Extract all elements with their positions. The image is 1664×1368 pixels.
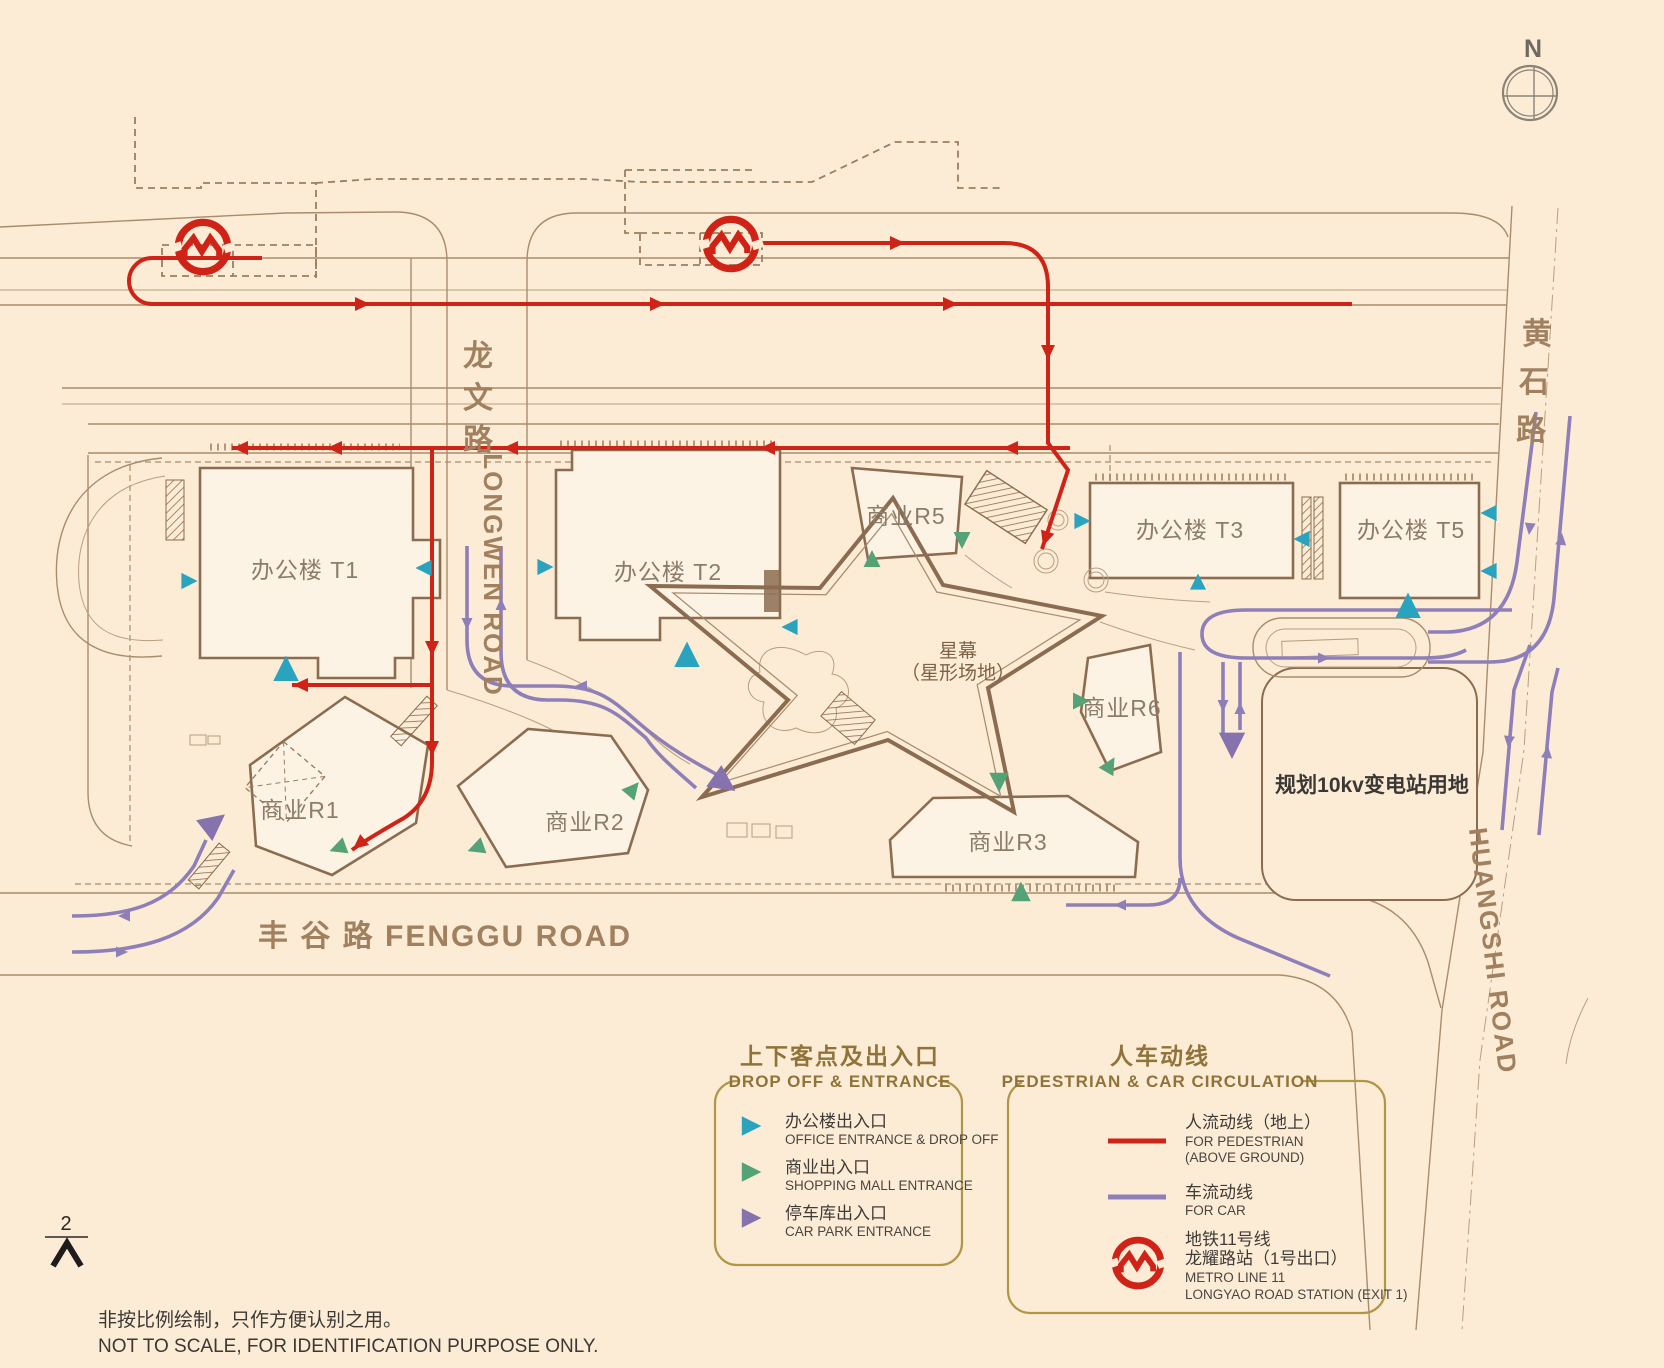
huangshi-cn-1: 黄 bbox=[1522, 318, 1552, 351]
legend-office-en: OFFICE ENTRANCE & DROP OFF bbox=[785, 1132, 999, 1147]
fenggu-label: 丰 谷 路 FENGGU ROAD bbox=[258, 920, 632, 953]
core-structure bbox=[764, 570, 781, 612]
legend-metro-logo-icon bbox=[1107, 1240, 1169, 1286]
legend-metro-en1: METRO LINE 11 bbox=[1185, 1270, 1285, 1285]
compass-label: N bbox=[1524, 35, 1542, 63]
legend-entrance: 上下客点及出入口 DROP OFF & ENTRANCE 办公楼出入口 OFFI… bbox=[715, 1043, 999, 1265]
label-plaza-1: 星幕 bbox=[939, 640, 977, 662]
longwen-en: LONGWEN ROAD bbox=[478, 453, 508, 697]
legend-carpark-en: CAR PARK ENTRANCE bbox=[785, 1224, 931, 1239]
legend-pedestrian-cn: 人流动线（地上） bbox=[1185, 1113, 1321, 1132]
building-r2 bbox=[458, 729, 648, 867]
legend-office-cn: 办公楼出入口 bbox=[785, 1112, 887, 1131]
legend-circulation: 人车动线 PEDESTRIAN & CAR CIRCULATION 人流动线（地… bbox=[1002, 1043, 1408, 1313]
page-marker-number: 2 bbox=[60, 1213, 71, 1235]
north-compass bbox=[1503, 66, 1557, 120]
longwen-cn-1: 龙 bbox=[463, 340, 493, 373]
site-plan-page: N 龙 文 路 LONGWEN ROAD 黄 石 路 HUANGSHI ROAD… bbox=[0, 0, 1664, 1368]
metro-logo-icon bbox=[698, 219, 764, 268]
legend-metro-en2: LONGYAO ROAD STATION (EXIT 1) bbox=[1185, 1287, 1408, 1302]
label-r3: 商业R3 bbox=[968, 829, 1047, 855]
huangshi-en: HUANGSHI ROAD bbox=[1463, 826, 1523, 1076]
legend-carpark-icon bbox=[742, 1208, 762, 1228]
legend-pedestrian-en2: (ABOVE GROUND) bbox=[1185, 1150, 1304, 1165]
legend-mall-icon bbox=[742, 1162, 762, 1182]
legend-car-en: FOR CAR bbox=[1185, 1203, 1246, 1218]
disclaimer-en: NOT TO SCALE, FOR IDENTIFICATION PURPOSE… bbox=[98, 1336, 598, 1357]
buildings bbox=[200, 450, 1479, 900]
label-t5: 办公楼 T5 bbox=[1357, 517, 1465, 543]
chevron-up-icon bbox=[53, 1243, 81, 1266]
legend-entrance-title-en: DROP OFF & ENTRANCE bbox=[729, 1072, 952, 1091]
parking-strip bbox=[166, 480, 184, 540]
label-r1: 商业R1 bbox=[260, 797, 339, 823]
legend-metro-cn2: 龙耀路站（1号出口） bbox=[1185, 1249, 1347, 1268]
disclaimer-cn: 非按比例绘制，只作方便认别之用。 bbox=[98, 1309, 402, 1331]
legend-mall-cn: 商业出入口 bbox=[785, 1158, 870, 1177]
label-substation: 规划10kv变电站用地 bbox=[1275, 773, 1469, 797]
huangshi-cn-3: 路 bbox=[1516, 414, 1547, 447]
label-r6: 商业R6 bbox=[1082, 695, 1161, 721]
legend-carpark-cn: 停车库出入口 bbox=[785, 1204, 887, 1223]
label-t2: 办公楼 T2 bbox=[614, 559, 722, 585]
legend-car-cn: 车流动线 bbox=[1185, 1183, 1253, 1202]
page-marker: 2 bbox=[45, 1213, 88, 1266]
longwen-cn-3: 路 bbox=[463, 424, 494, 457]
longwen-cn-2: 文 bbox=[463, 381, 493, 415]
stair-structure bbox=[821, 692, 875, 745]
legend-circulation-title-en: PEDESTRIAN & CAR CIRCULATION bbox=[1002, 1072, 1319, 1091]
legend-entrance-title-cn: 上下客点及出入口 bbox=[740, 1043, 940, 1069]
huangshi-cn-2: 石 bbox=[1518, 366, 1549, 399]
legend-metro-cn1: 地铁11号线 bbox=[1185, 1230, 1271, 1249]
link-bridge-strip bbox=[1314, 497, 1323, 579]
legend-circulation-title-cn: 人车动线 bbox=[1110, 1043, 1210, 1069]
dashed-boundary bbox=[135, 117, 1000, 278]
site-plan-svg: N 龙 文 路 LONGWEN ROAD 黄 石 路 HUANGSHI ROAD… bbox=[0, 0, 1664, 1368]
legend-pedestrian-en1: FOR PEDESTRIAN bbox=[1185, 1134, 1304, 1149]
metro-logo-icon bbox=[170, 222, 236, 271]
legend-mall-en: SHOPPING MALL ENTRANCE bbox=[785, 1178, 973, 1193]
label-t1: 办公楼 T1 bbox=[251, 557, 359, 583]
legend-office-icon bbox=[742, 1116, 762, 1136]
building-t2 bbox=[556, 450, 780, 640]
disclaimer: 非按比例绘制，只作方便认别之用。 NOT TO SCALE, FOR IDENT… bbox=[98, 1309, 598, 1357]
escalator-structure bbox=[965, 471, 1047, 544]
label-r5: 商业R5 bbox=[866, 503, 945, 529]
label-t3: 办公楼 T3 bbox=[1136, 517, 1244, 543]
label-r2: 商业R2 bbox=[545, 809, 624, 835]
label-plaza-2: （星形场地） bbox=[901, 662, 1015, 684]
